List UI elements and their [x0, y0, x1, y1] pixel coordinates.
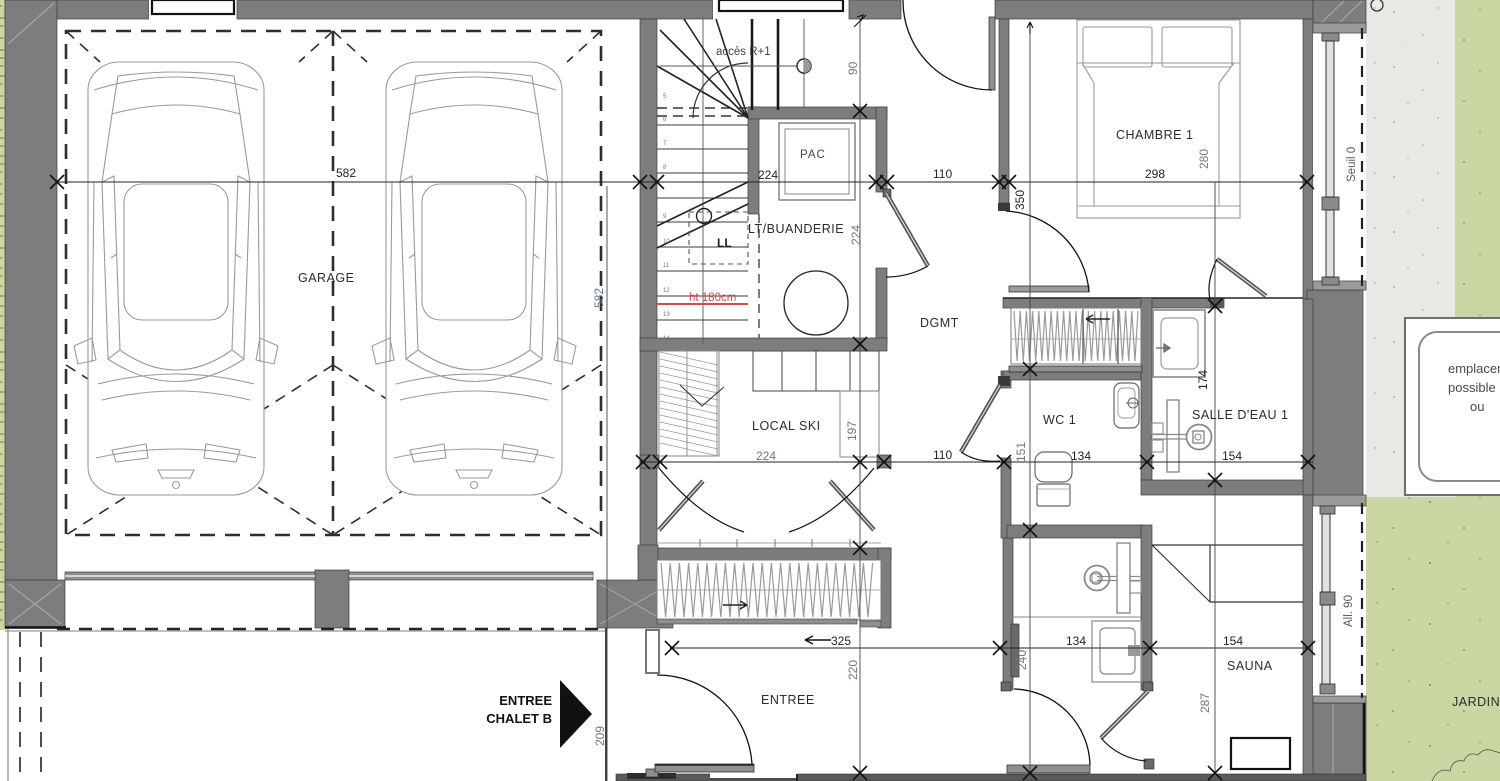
svg-text:SALLE D'EAU 1: SALLE D'EAU 1 [1192, 408, 1288, 422]
svg-text:12: 12 [663, 288, 670, 294]
svg-text:154: 154 [1222, 449, 1242, 463]
svg-text:582: 582 [336, 166, 356, 180]
svg-text:197: 197 [845, 421, 859, 441]
svg-text:LOCAL SKI: LOCAL SKI [752, 419, 821, 433]
svg-text:CHALET B: CHALET B [486, 711, 552, 726]
svg-text:ou: ou [1470, 399, 1484, 414]
svg-text:14: 14 [663, 336, 670, 342]
svg-text:10: 10 [663, 239, 670, 245]
svg-text:CHAMBRE 1: CHAMBRE 1 [1116, 128, 1193, 142]
svg-text:298: 298 [1145, 167, 1165, 181]
svg-text:Seuil 0: Seuil 0 [1346, 147, 1358, 182]
svg-text:287: 287 [1198, 693, 1212, 713]
svg-text:All. 90: All. 90 [1343, 595, 1355, 627]
svg-text:LL: LL [717, 236, 732, 250]
svg-text:224: 224 [849, 225, 863, 245]
svg-text:PAC: PAC [800, 149, 826, 161]
svg-text:JARDIN: JARDIN [1452, 695, 1500, 709]
svg-text:emplacem: emplacem [1448, 361, 1500, 376]
svg-text:325: 325 [831, 634, 851, 648]
svg-text:220: 220 [846, 660, 860, 680]
svg-text:582: 582 [592, 288, 606, 308]
svg-text:151: 151 [1014, 442, 1028, 462]
svg-text:224: 224 [756, 449, 776, 463]
svg-text:WC 1: WC 1 [1043, 413, 1076, 427]
svg-text:accès R+1: accès R+1 [716, 46, 771, 58]
svg-text:174: 174 [1196, 370, 1210, 390]
svg-text:possible: possible [1448, 380, 1496, 395]
svg-text:13: 13 [663, 312, 670, 318]
svg-text:DGMT: DGMT [920, 316, 959, 330]
svg-text:350: 350 [1013, 190, 1027, 210]
svg-text:240: 240 [1015, 650, 1029, 670]
svg-text:110: 110 [933, 167, 952, 181]
svg-text:154: 154 [1223, 634, 1243, 648]
svg-text:SAUNA: SAUNA [1227, 659, 1273, 673]
svg-text:ENTREE: ENTREE [761, 693, 815, 707]
svg-text:110: 110 [933, 448, 952, 462]
svg-text:ENTREE: ENTREE [499, 693, 552, 708]
svg-text:209: 209 [593, 726, 607, 746]
svg-text:224: 224 [758, 168, 778, 182]
svg-text:LT/BUANDERIE: LT/BUANDERIE [748, 222, 844, 236]
svg-text:ht 180cm: ht 180cm [689, 292, 736, 304]
svg-text:134: 134 [1066, 634, 1086, 648]
svg-text:280: 280 [1197, 149, 1211, 169]
svg-text:GARAGE: GARAGE [298, 271, 355, 285]
svg-text:11: 11 [663, 263, 670, 269]
svg-text:134: 134 [1071, 449, 1091, 463]
svg-text:90: 90 [846, 61, 860, 75]
